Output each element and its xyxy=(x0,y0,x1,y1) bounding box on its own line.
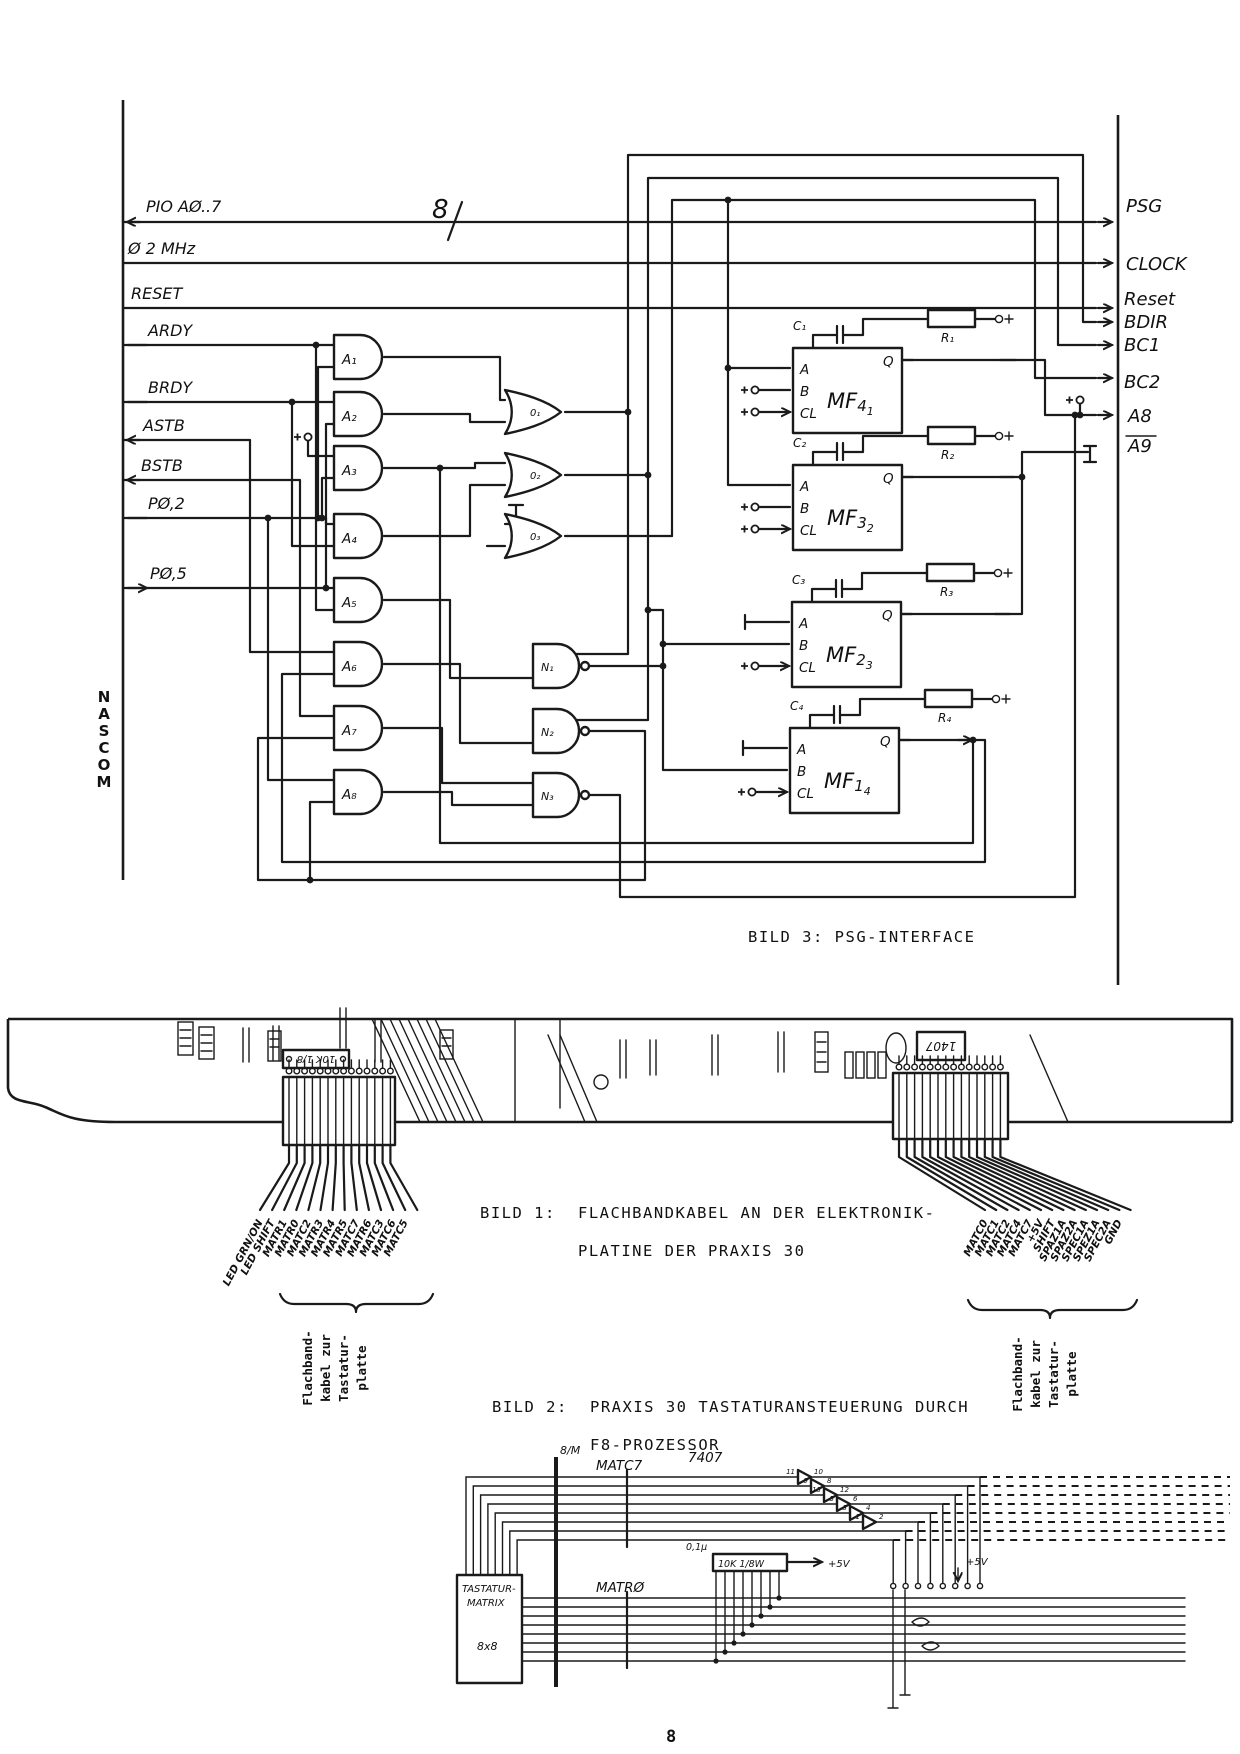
gate-label-a5: A₅ xyxy=(341,595,357,611)
connector-pin xyxy=(380,1068,386,1074)
ribbon-wire xyxy=(272,1145,297,1210)
gate-label-a6: A₆ xyxy=(341,659,357,675)
bus-width-label: 8 xyxy=(432,195,449,225)
signal-label-p05: PØ,5 xyxy=(150,564,187,583)
buffer-pin-number: 12 xyxy=(840,1486,849,1494)
figure1-caption-line1: FLACHBANDKABEL AN DER ELEKTRONIK- xyxy=(578,1204,935,1222)
nascom-letter: O xyxy=(98,756,111,774)
page-artwork: 8 PIO AØ..7 Ø 2 MHz RESET ARDY BRDY ASTB… xyxy=(0,0,1240,1754)
cable-end-pin xyxy=(953,1583,958,1588)
pin-q: Q xyxy=(882,608,893,624)
bus-signal-lines xyxy=(123,222,1096,308)
buffer-pin-number: 4 xyxy=(866,1504,870,1512)
cable-end-pin xyxy=(940,1583,945,1588)
ribbon-wire xyxy=(985,1139,1108,1210)
right-brace xyxy=(968,1300,1137,1318)
connector-pin xyxy=(388,1068,394,1074)
nascom-letter: A xyxy=(98,705,110,723)
gate-label-n3: N₃ xyxy=(541,790,554,803)
page-number: 8 xyxy=(666,1727,676,1747)
gate-label-n2: N₂ xyxy=(541,726,554,739)
cap-label: C₃ xyxy=(792,573,805,587)
signal-label-bstb: BSTB xyxy=(141,456,183,475)
pin-b: B xyxy=(797,764,806,780)
pin-a: A xyxy=(796,742,806,758)
buffer-pin-number: 2 xyxy=(879,1513,884,1521)
ribbon-wire xyxy=(390,1145,417,1210)
signal-label-ardy: ARDY xyxy=(147,321,193,340)
ribbon-wire xyxy=(351,1145,356,1210)
cable-end-pin xyxy=(891,1583,896,1588)
pin-cl: CL xyxy=(800,523,817,539)
pin-b: B xyxy=(799,638,808,654)
svg-text:platte: platte xyxy=(354,1345,369,1391)
buffer-pin-number: 6 xyxy=(853,1495,858,1503)
connector-pin xyxy=(982,1064,988,1070)
connector-pin xyxy=(998,1064,1004,1070)
a3-pullup-wire xyxy=(308,441,334,456)
signal-label-brdy: BRDY xyxy=(148,378,193,397)
mf-block-3: A B CL Q MF23 C₃ R₃ xyxy=(778,564,1012,687)
pin-a: A xyxy=(799,362,809,378)
connector-pin xyxy=(974,1064,980,1070)
or-gates: 0₁ 0₂ 0₃ xyxy=(505,390,561,558)
pin-q: Q xyxy=(880,734,891,750)
svg-text:Flachband-: Flachband- xyxy=(1010,1336,1025,1411)
signal-label-bc2: BC2 xyxy=(1124,372,1160,393)
res-label: R₁ xyxy=(941,331,954,345)
gate-label-a3: A₃ xyxy=(341,463,357,479)
junction-dot xyxy=(776,1595,781,1600)
pin-cl: CL xyxy=(800,406,817,422)
cap-label: C₂ xyxy=(793,436,806,450)
res-label: R₃ xyxy=(940,585,953,599)
ribbon-wire xyxy=(383,1145,406,1210)
matrix-box-line3: 8x8 xyxy=(477,1640,498,1653)
cap-label-01u: 0,1µ xyxy=(686,1542,707,1553)
cable-end-pin xyxy=(928,1583,933,1588)
signal-label-p02: PØ,2 xyxy=(148,494,185,513)
right-cable-connector xyxy=(893,1073,1008,1139)
mf-block-2: A B CL Q MF32 C₂ R₂ xyxy=(779,427,1013,550)
connector-pin xyxy=(935,1064,941,1070)
junction-dots xyxy=(265,197,1084,884)
figure1-caption-label: BILD 1: xyxy=(480,1204,556,1222)
junction-dot xyxy=(749,1622,754,1627)
res-label: R₄ xyxy=(938,711,951,725)
gate-label-a1: A₁ xyxy=(341,352,357,368)
signal-label-2mhz: Ø 2 MHz xyxy=(127,239,196,258)
cable-end-pin xyxy=(977,1583,982,1588)
signal-label-pio: PIO AØ..7 xyxy=(146,197,222,216)
matc-line xyxy=(510,1531,906,1583)
gate-label-a4: A₄ xyxy=(341,531,357,547)
buffer-pin-number: 3 xyxy=(843,1504,847,1512)
nascom-letter: N xyxy=(98,688,111,706)
ribbon-wire xyxy=(260,1145,289,1210)
connector-pin xyxy=(372,1068,378,1074)
mf-input-rails xyxy=(648,200,779,770)
buffer-pin-number: 8 xyxy=(827,1477,832,1485)
gate-label-o2: 0₂ xyxy=(530,471,540,482)
ribbon-wire xyxy=(321,1145,329,1210)
mf-block-4: A B CL Q MF14 C₄ R₄ xyxy=(776,690,1010,813)
connector-pin xyxy=(356,1068,362,1074)
gate-label-o1: 0₁ xyxy=(530,408,540,419)
connector-pin xyxy=(912,1064,918,1070)
pcb-components: 1407 10K 1/8 xyxy=(178,1022,965,1078)
signal-label-bdir: BDIR xyxy=(1124,312,1168,333)
ribbon-wire xyxy=(308,1145,320,1210)
svg-text:Flachband-: Flachband- xyxy=(300,1330,315,1405)
buffer-pin-number: 13 xyxy=(812,1486,821,1494)
figure3-caption: BILD 3: PSG-INTERFACE xyxy=(748,928,975,946)
scanned-document-page: { "page": { "number": "8", "ink": "#1a1a… xyxy=(0,0,1240,1754)
left-brace xyxy=(280,1294,433,1312)
cap-label: C₄ xyxy=(790,699,803,713)
connector-pin xyxy=(951,1064,957,1070)
connector-pin xyxy=(904,1064,910,1070)
ic-label-7407: 7407 xyxy=(688,1450,723,1466)
a9-bar-symbol xyxy=(1084,446,1096,462)
pin-q: Q xyxy=(883,354,894,370)
signal-label-resetr: Reset xyxy=(1124,289,1176,310)
connector-pin xyxy=(896,1064,902,1070)
cap-label: C₁ xyxy=(793,319,806,333)
junction-dot xyxy=(758,1613,763,1618)
connector-pin xyxy=(943,1064,949,1070)
pin-a: A xyxy=(798,616,808,632)
bus-label-matc7: MATC7 xyxy=(596,1458,643,1474)
res-label: R₂ xyxy=(941,448,954,462)
resistor-network-label: 10K 1/8W xyxy=(718,1559,765,1570)
buffer-pin-number: 11 xyxy=(786,1468,795,1476)
vcc-label: +5V xyxy=(828,1559,851,1570)
figure3-psg-interface-schematic: 8 PIO AØ..7 Ø 2 MHz RESET ARDY BRDY ASTB… xyxy=(97,100,1188,985)
signal-label-a8: A8 xyxy=(1127,406,1152,427)
bus-label-matr0: MATRØ xyxy=(596,1580,645,1596)
nascom-letter: S xyxy=(99,722,110,740)
resistor-pack-label: 10K 1/8 xyxy=(297,1053,336,1064)
a8-pullup xyxy=(1066,396,1084,403)
cable-end-pin xyxy=(915,1583,920,1588)
svg-text:platte: platte xyxy=(1064,1351,1079,1397)
pin-cl: CL xyxy=(799,660,816,676)
signal-label-psg: PSG xyxy=(1126,196,1162,217)
logic-1-stubs xyxy=(743,615,778,755)
connector-pin xyxy=(927,1064,933,1070)
nand-gates: N₁ N₂ N₃ xyxy=(533,644,589,817)
cable-end-pin xyxy=(903,1583,908,1588)
buffer-pin-number: 10 xyxy=(814,1468,823,1476)
gate-label-a7: A₇ xyxy=(341,723,357,739)
buffer-pin-number: 5 xyxy=(830,1495,835,1503)
ribbon-wire xyxy=(344,1145,345,1210)
gate-label-a2: A₂ xyxy=(341,409,357,425)
signal-label-astb: ASTB xyxy=(142,416,185,435)
svg-text:kabel zur: kabel zur xyxy=(318,1334,333,1402)
left-cable-connector xyxy=(283,1077,395,1145)
connector-pin xyxy=(990,1064,996,1070)
nascom-letter: M xyxy=(97,773,112,791)
figure1-caption-line2: PLATINE DER PRAXIS 30 xyxy=(578,1242,805,1260)
a3-pullup xyxy=(294,433,312,440)
gate-label-o3: 0₃ xyxy=(530,532,540,543)
figure1-pcb-drawing: 1407 10K 1/8 LED GRN/ONLED SHIFTMATR1MAT… xyxy=(8,1008,1232,1412)
pin-b: B xyxy=(800,384,809,400)
pin-cl: CL xyxy=(797,786,814,802)
signal-label-bc1: BC1 xyxy=(1124,335,1160,356)
right-brace-note: Flachband- kabel zur Tastatur- platte xyxy=(1010,1336,1079,1411)
matrix-box-line2: MATRIX xyxy=(467,1598,506,1609)
and-gates: A₁ A₂ A₃ A₄ A₅ A₆ A₇ A₈ xyxy=(334,335,382,814)
connector-pin xyxy=(920,1064,926,1070)
connector-pin xyxy=(349,1068,355,1074)
svg-text:Tastatur-: Tastatur- xyxy=(1046,1340,1061,1408)
ribbon-wire xyxy=(284,1145,304,1210)
connector-pin xyxy=(959,1064,965,1070)
ribbon-wire xyxy=(333,1145,336,1210)
svg-text:kabel zur: kabel zur xyxy=(1028,1340,1043,1408)
figure2-caption-line1: PRAXIS 30 TASTATURANSTEUERUNG DURCH xyxy=(590,1398,969,1416)
vcc-label2: +5V xyxy=(966,1557,989,1568)
signal-label-reset: RESET xyxy=(131,284,183,303)
pin-q: Q xyxy=(883,471,894,487)
signal-label-a9: A9 xyxy=(1127,436,1152,457)
cable-end-pin xyxy=(965,1583,970,1588)
signal-label-clock: CLOCK xyxy=(1126,254,1188,275)
figure2-caption-label: BILD 2: xyxy=(492,1398,568,1416)
mf-block-1: A B CL Q MF41 C₁ R₁ xyxy=(779,310,1013,433)
gate-label-a8: A₈ xyxy=(341,787,357,803)
buffer-pin-number: 9 xyxy=(804,1477,809,1485)
arrows-q xyxy=(958,360,1016,740)
ic-label-1407: 1407 xyxy=(925,1039,956,1053)
gate-label-n1: N₁ xyxy=(541,661,554,674)
left-brace-note: Flachband- kabel zur Tastatur- platte xyxy=(300,1330,369,1405)
buffer-gate xyxy=(863,1515,876,1529)
figure2-bus-width: 8/M xyxy=(560,1444,581,1457)
left-signal-wires xyxy=(123,345,334,716)
svg-text:Tastatur-: Tastatur- xyxy=(336,1334,351,1402)
connector-pin xyxy=(364,1068,370,1074)
matrix-box-line1: TASTATUR- xyxy=(462,1584,516,1595)
pin-b: B xyxy=(800,501,809,517)
junction-dot xyxy=(767,1604,772,1609)
pin-a: A xyxy=(799,479,809,495)
connector-pin xyxy=(966,1064,972,1070)
nascom-letter: C xyxy=(98,739,109,757)
buffer-pin-number: 1 xyxy=(856,1513,860,1521)
figure2-keyboard-schematic: BILD 2: PRAXIS 30 TASTATURANSTEUERUNG DU… xyxy=(457,1398,1230,1747)
